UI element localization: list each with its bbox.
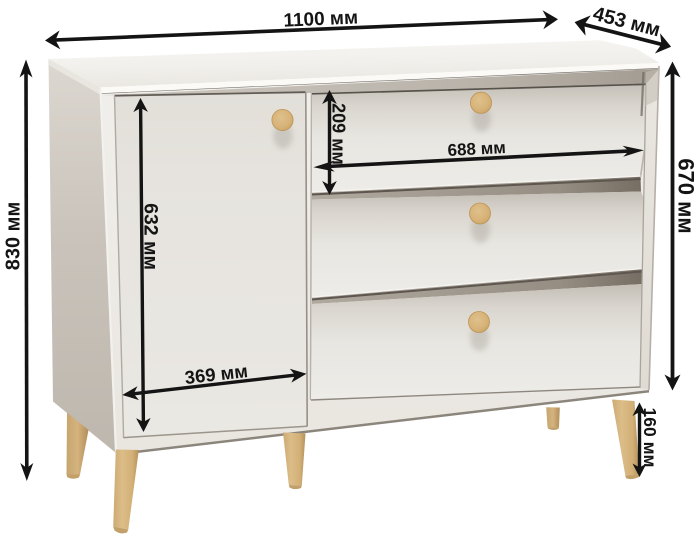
svg-text:632 мм: 632 мм [140,203,162,270]
svg-text:688 мм: 688 мм [447,138,506,160]
svg-text:670 мм: 670 мм [674,158,699,233]
svg-text:209 мм: 209 мм [329,103,349,165]
svg-text:830 мм: 830 мм [3,202,25,271]
svg-text:160 мм: 160 мм [640,408,660,468]
svg-text:1100 мм: 1100 мм [283,7,358,31]
